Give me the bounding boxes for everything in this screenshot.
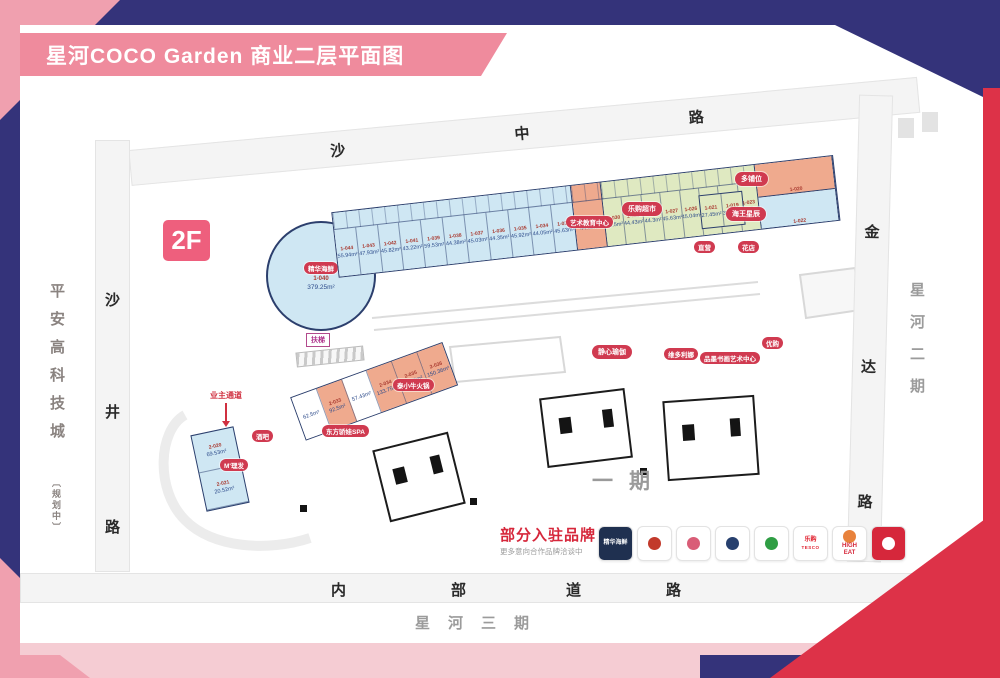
district-xinghe-phase2: 星河二期 bbox=[906, 282, 927, 410]
tenant-pill-victoria: 维多利娜 bbox=[664, 348, 698, 360]
slab-right-stack: 1-020 1-022 bbox=[755, 156, 840, 228]
down-arrow-icon bbox=[225, 403, 227, 421]
frame-pink-band-bottom bbox=[60, 655, 700, 678]
floor-badge: 2F bbox=[163, 220, 210, 261]
title-banner: 星河COCO Garden 商业二层平面图 bbox=[20, 33, 507, 76]
road-char: 中 bbox=[514, 122, 531, 144]
brands-subheading: 更多意向合作品牌洽谈中 bbox=[500, 546, 583, 557]
brand-mascot-icon bbox=[765, 537, 778, 550]
tenant-pill-thai-beef: 泰小牛火锅 bbox=[393, 379, 434, 391]
brand-mascot-icon bbox=[882, 537, 895, 550]
brand-logo: 乐购 TESCO bbox=[793, 526, 828, 561]
road-char: 井 bbox=[105, 401, 120, 422]
brand-mascot-icon bbox=[843, 530, 856, 543]
brand-mascot-icon bbox=[726, 537, 739, 550]
road-shajing: 沙 井 路 bbox=[95, 140, 130, 572]
brands-heading: 部分入驻品牌 bbox=[500, 524, 596, 545]
tenant-pill-pharmacy: 海王星辰 bbox=[726, 207, 766, 221]
brand-logo bbox=[871, 526, 906, 561]
page-title: 星河COCO Garden 商业二层平面图 bbox=[20, 40, 404, 70]
unit-number: 1-040 bbox=[313, 276, 328, 282]
road-char: 部 bbox=[451, 579, 466, 600]
unit-area: 379.25m² bbox=[307, 284, 334, 291]
unit-cell: 2-021 20.52m² bbox=[199, 465, 248, 511]
floorplan-page: 星河COCO Garden 商业二层平面图 2F 沙 中 路 沙 井 路 金 达… bbox=[0, 0, 1000, 678]
tenant-pill-art-center: 品墨书画艺术中心 bbox=[700, 352, 760, 364]
road-char: 路 bbox=[688, 106, 705, 128]
district-xinghe-phase3: 星河三期 bbox=[415, 612, 547, 633]
tenant-pill-spa: 东方骄娃SPA bbox=[322, 425, 369, 437]
tenant-pill-yougou: 优购 bbox=[762, 337, 783, 349]
owner-passage-marker: 业主通道 bbox=[210, 390, 242, 427]
brand-mascot-icon bbox=[648, 537, 661, 550]
tenant-pill-barber: M'理发 bbox=[220, 459, 248, 471]
tenant-pill-multi-shop: 多铺位 bbox=[735, 172, 768, 186]
tower-footprint bbox=[539, 388, 633, 468]
road-char: 路 bbox=[857, 491, 873, 512]
road-internal: 内 部 道 路 bbox=[20, 573, 985, 603]
tenant-pill-supermarket: 乐购超市 bbox=[622, 202, 662, 216]
district-planning-note: 〔规划中〕 bbox=[50, 478, 63, 533]
road-char: 沙 bbox=[105, 289, 120, 310]
tenant-pill-flower-shop: 花店 bbox=[738, 241, 759, 253]
down-arrow-icon bbox=[222, 421, 230, 427]
district-phase1: 一期 bbox=[592, 465, 666, 495]
brand-logo bbox=[754, 526, 789, 561]
brand-mascot-icon bbox=[687, 537, 700, 550]
brand-logo bbox=[715, 526, 750, 561]
road-char: 路 bbox=[105, 516, 120, 537]
tenant-pill-direct: 直营 bbox=[694, 241, 715, 253]
tenant-pill-bar: 酒吧 bbox=[252, 430, 273, 442]
road-char: 金 bbox=[864, 221, 880, 242]
brand-logo bbox=[637, 526, 672, 561]
escalator-label: 扶梯 bbox=[306, 333, 330, 347]
tenant-pill-yoga: 静心瑜伽 bbox=[592, 345, 632, 359]
road-char: 达 bbox=[861, 356, 877, 377]
tenant-pill-seafood: 精华海鲜 bbox=[304, 262, 338, 274]
road-char: 内 bbox=[331, 579, 346, 600]
brand-logo bbox=[676, 526, 711, 561]
tenant-pill-art-education: 艺术教育中心 bbox=[566, 216, 613, 228]
road-char: 道 bbox=[566, 579, 581, 600]
district-pingan-tech-city: 平安高科技城 bbox=[46, 283, 67, 451]
brand-logo: 精华海鲜 bbox=[598, 526, 633, 561]
tower-footprint bbox=[662, 395, 759, 481]
road-char: 沙 bbox=[329, 139, 346, 161]
brand-logo-row: 精华海鲜 乐购 TESCO bbox=[598, 526, 906, 561]
road-char: 路 bbox=[666, 579, 681, 600]
owner-passage-label: 业主通道 bbox=[210, 391, 242, 400]
brand-logo: HIGH EAT bbox=[832, 526, 867, 561]
